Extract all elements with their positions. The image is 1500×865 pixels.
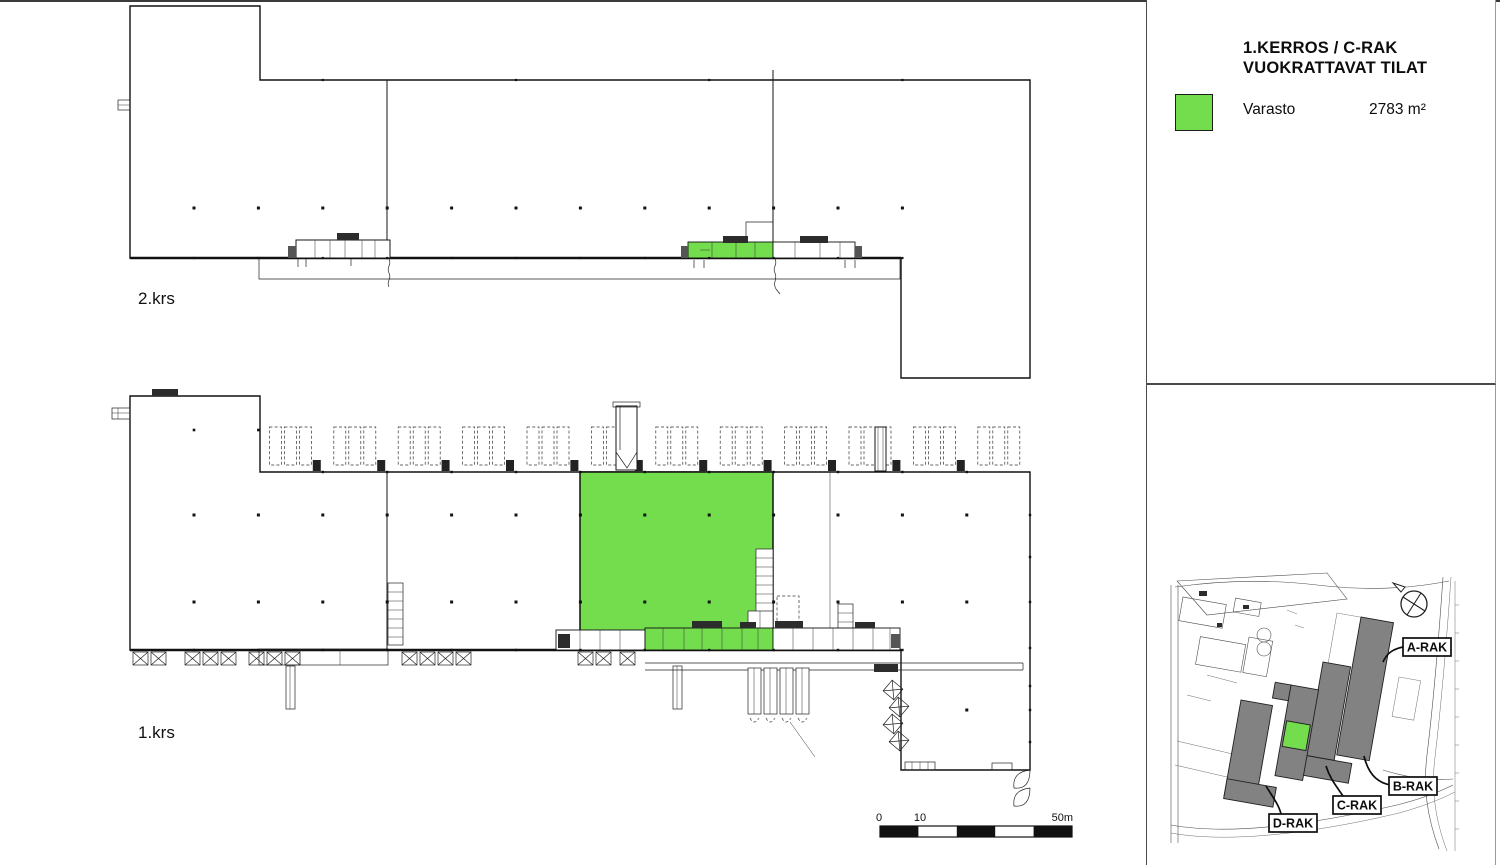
1krs-dock-canopy-right xyxy=(645,663,1023,672)
legend-title-line2: VUOKRATTAVAT TILAT xyxy=(1243,58,1427,78)
legend-panel: 1.KERROS / C-RAK VUOKRATTAVAT TILAT Vara… xyxy=(1146,0,1496,385)
1krs-loading-dock-bays xyxy=(269,427,1019,471)
legend-item-area: 2783 m² xyxy=(1369,101,1426,119)
floor-plan-2krs: 2.krs xyxy=(118,6,1030,378)
legend-title-line1: 1.KERROS / C-RAK xyxy=(1243,38,1427,58)
1krs-stair-flights xyxy=(883,680,909,751)
varasto-highlight-sitemap xyxy=(1282,721,1310,751)
floor-plans-canvas: 2.krs xyxy=(0,0,1146,865)
1krs-rack-stack-left xyxy=(388,583,403,645)
site-map-panel: A-RAK B-RAK C-RAK D-RAK xyxy=(1146,385,1496,865)
floor-plan-1krs: 1.krs xyxy=(112,389,1031,806)
svg-text:A-RAK: A-RAK xyxy=(1407,641,1447,655)
1krs-roof-tower-large xyxy=(613,402,640,470)
building-label-b-rak: B-RAK xyxy=(1389,777,1437,795)
1krs-extension-details xyxy=(905,762,1030,806)
svg-text:B-RAK: B-RAK xyxy=(1393,780,1433,794)
scale-tick-0: 0 xyxy=(876,812,882,824)
varasto-color-swatch xyxy=(1175,94,1213,131)
legend-item-label: Varasto xyxy=(1243,101,1295,119)
2krs-room-cluster-left xyxy=(288,233,390,267)
plan-label-2krs: 2.krs xyxy=(138,289,175,308)
scale-tick-10: 10 xyxy=(914,812,926,824)
building-label-d-rak: D-RAK xyxy=(1269,814,1317,832)
building-label-c-rak: C-RAK xyxy=(1333,796,1381,814)
scale-tick-50m: 50m xyxy=(1052,812,1073,824)
scale-bar: 0 10 50m xyxy=(876,812,1073,837)
1krs-truck-bays xyxy=(748,668,815,757)
svg-text:D-RAK: D-RAK xyxy=(1273,817,1313,831)
2krs-column-grid-dots xyxy=(193,79,904,259)
drawing-sheet: 2.krs xyxy=(0,0,1500,865)
legend-title: 1.KERROS / C-RAK VUOKRATTAVAT TILAT xyxy=(1243,38,1427,78)
building-label-a-rak: A-RAK xyxy=(1403,638,1451,656)
1krs-dock-canopy-boxes xyxy=(133,652,635,665)
1krs-roof-tower-small xyxy=(875,427,886,471)
2krs-room-cluster-mid xyxy=(681,222,862,268)
north-arrow-icon xyxy=(1393,583,1427,617)
svg-text:C-RAK: C-RAK xyxy=(1337,799,1377,813)
1krs-dock-canopy-left xyxy=(259,649,388,665)
plan-label-1krs: 1.krs xyxy=(138,723,175,742)
varasto-highlight-area-1krs xyxy=(580,472,773,648)
site-map: A-RAK B-RAK C-RAK D-RAK xyxy=(1147,385,1494,863)
